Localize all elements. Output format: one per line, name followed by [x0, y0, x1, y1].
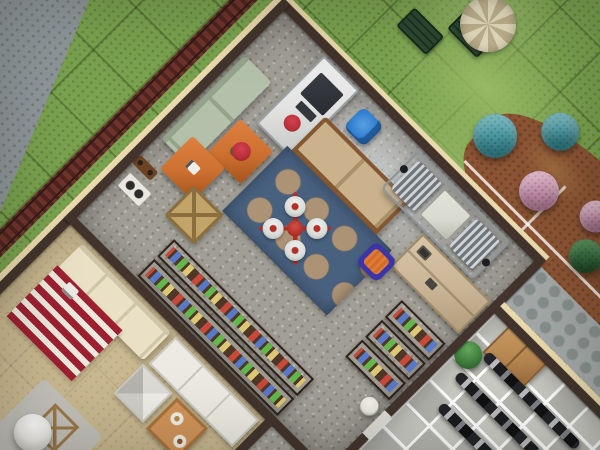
- lamp-hub: [284, 217, 307, 240]
- desk-item: [424, 277, 437, 290]
- chair-seat-cushion: [362, 248, 390, 276]
- desk-phone[interactable]: [416, 245, 432, 261]
- tabletop-item[interactable]: [185, 159, 201, 175]
- flower-vase[interactable]: [228, 138, 255, 165]
- bonsai-red-plant[interactable]: [280, 111, 304, 135]
- sims-lot-view: [0, 0, 600, 450]
